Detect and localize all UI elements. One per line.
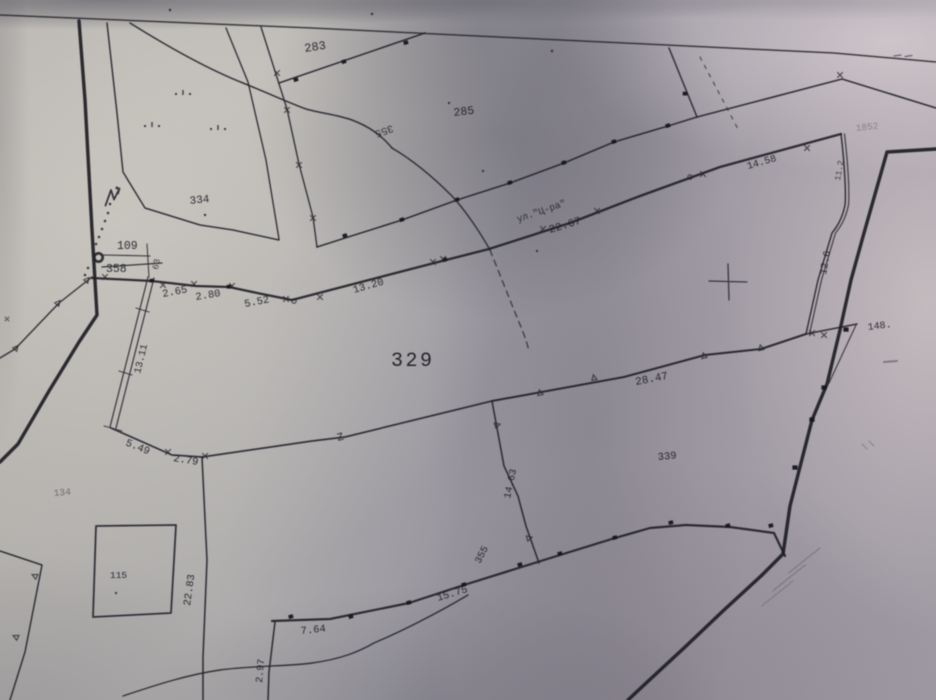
svg-text:22.67: 22.67	[548, 216, 583, 237]
svg-text:2.79: 2.79	[172, 453, 199, 469]
svg-text:1852: 1852	[855, 121, 879, 134]
svg-text:355: 355	[373, 121, 395, 139]
svg-text:15.75: 15.75	[436, 584, 470, 605]
svg-text:285: 285	[453, 105, 475, 120]
svg-text:14.58: 14.58	[746, 154, 778, 173]
svg-text:283: 283	[303, 39, 327, 56]
svg-text:109: 109	[117, 240, 138, 253]
svg-text:339: 339	[657, 450, 677, 464]
svg-text:Z: Z	[336, 431, 346, 444]
svg-text:334: 334	[189, 194, 210, 208]
svg-text:2.80: 2.80	[195, 288, 222, 304]
svg-text:12.6: 12.6	[819, 250, 834, 276]
svg-text:358: 358	[106, 263, 127, 276]
svg-text:115: 115	[110, 570, 127, 581]
svg-text:13.20: 13.20	[352, 277, 386, 297]
svg-text:5.52: 5.52	[243, 294, 270, 311]
svg-text:148.: 148.	[867, 320, 892, 334]
svg-text:63: 63	[151, 258, 163, 270]
svg-text:2.97: 2.97	[255, 658, 268, 683]
svg-text:22.83: 22.83	[182, 574, 198, 607]
svg-text:134: 134	[53, 487, 71, 499]
svg-text:355: 355	[474, 545, 492, 566]
svg-text:329: 329	[391, 350, 435, 373]
svg-text:7.64: 7.64	[300, 623, 326, 638]
svg-text:5.49: 5.49	[124, 438, 152, 459]
